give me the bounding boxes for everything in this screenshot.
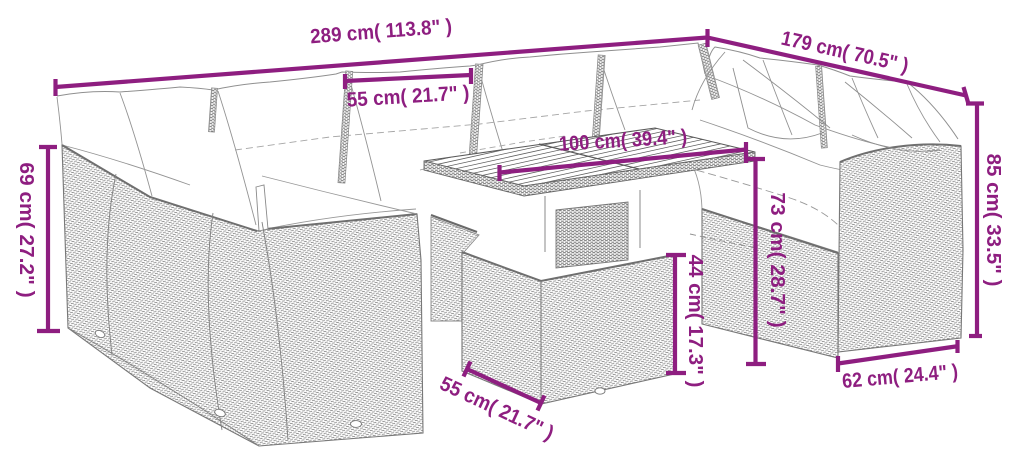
- svg-text:69 cm( 27.2" ): 69 cm( 27.2" ): [15, 162, 38, 297]
- svg-text:73 cm( 28.7" ): 73 cm( 28.7" ): [766, 192, 789, 327]
- svg-text:85 cm( 33.5" ): 85 cm( 33.5" ): [982, 154, 1005, 287]
- svg-text:44 cm( 17.3" ): 44 cm( 17.3" ): [684, 255, 707, 388]
